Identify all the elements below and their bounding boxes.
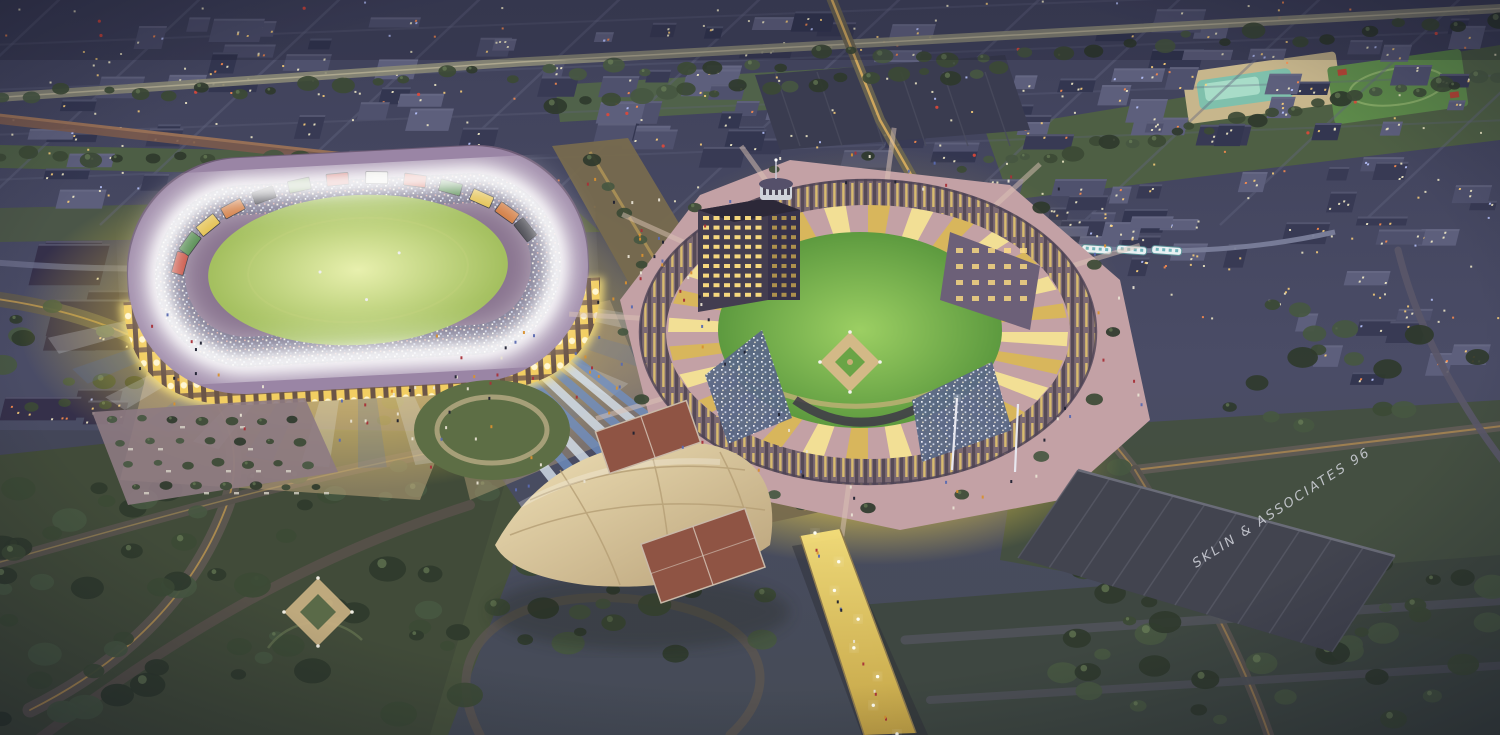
vignette-overlay — [0, 0, 1500, 735]
stadium-night-rendering: SKLIN & ASSOCIATES 96 — [0, 0, 1500, 735]
rendering-canvas: SKLIN & ASSOCIATES 96 — [0, 0, 1500, 735]
